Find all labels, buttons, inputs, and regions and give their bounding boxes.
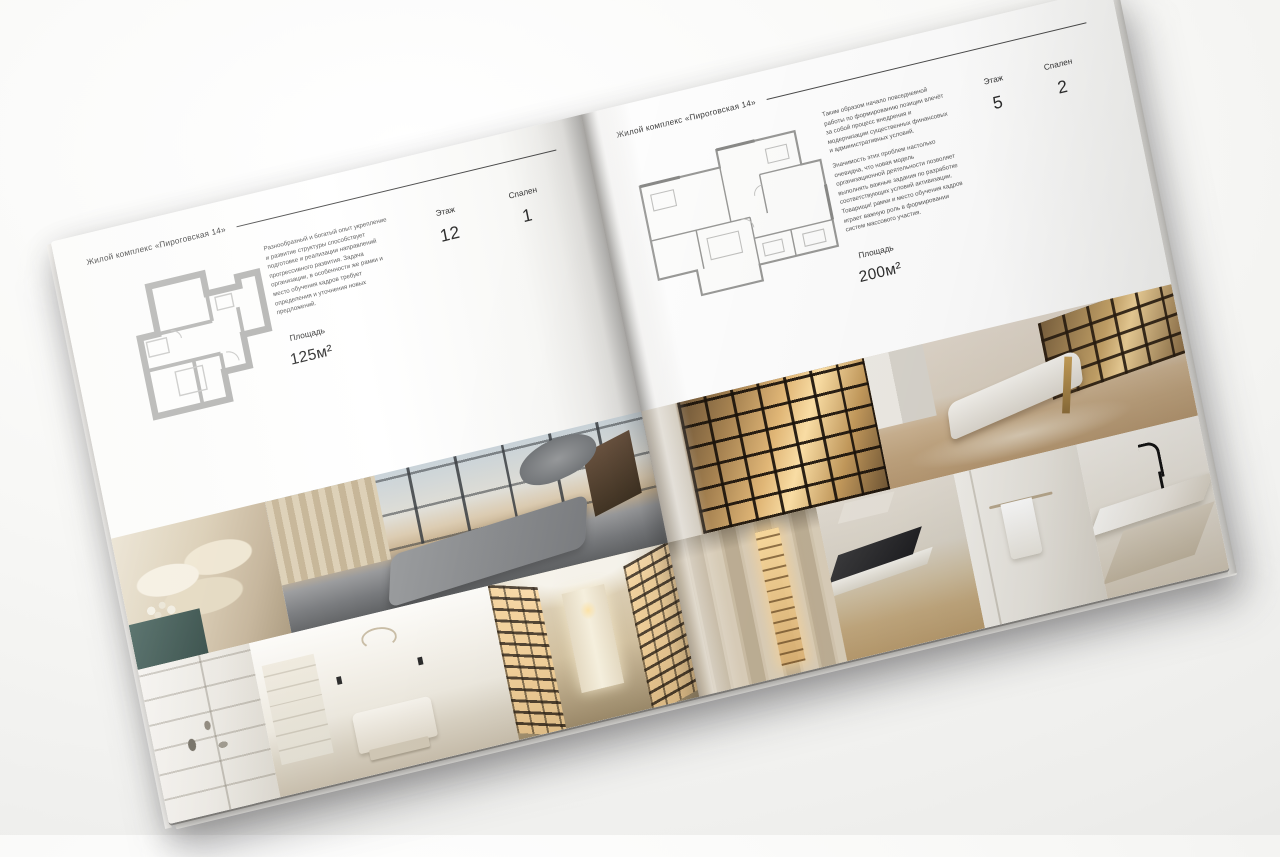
stat-floor-label: Этаж <box>983 72 1004 86</box>
stat-area-label: Площадь <box>858 242 895 260</box>
towel <box>1000 497 1043 560</box>
page-right: Жилой комплекс «Пироговская 14» <box>581 0 1230 696</box>
floor-plan-left <box>91 241 300 464</box>
stat-floor-value: 5 <box>991 91 1005 113</box>
brochure-spread: Жилой комплекс «Пироговская 14» <box>51 0 1230 824</box>
stat-area-label: Площадь <box>289 324 326 342</box>
page-right-body: Таким образом начало повседневной работы… <box>621 42 1127 335</box>
stat-floor-value: 12 <box>438 222 462 247</box>
stat-bedrooms-label: Спален <box>508 184 538 200</box>
stat-floor-label: Этаж <box>435 204 456 218</box>
white-shelving <box>864 343 937 428</box>
open-magazine: Жилой комплекс «Пироговская 14» <box>51 0 1230 824</box>
wall-arc-decor <box>360 624 397 650</box>
page-left-body: Разнообразный и богатый опыт укрепление … <box>91 169 598 463</box>
stat-bedrooms: Спален 2 <box>1043 55 1079 100</box>
stat-area-value: 200м² <box>858 259 903 286</box>
chandelier-glow <box>578 599 598 621</box>
stat-area-value: 125м² <box>289 342 334 369</box>
sconce-right <box>417 656 423 665</box>
sconce-left <box>336 676 342 685</box>
stat-floor: Этаж 12 <box>435 204 462 247</box>
stat-bedrooms-value: 2 <box>1056 76 1070 98</box>
scene: { "colors": { "rule": "#4a4a4a", "headin… <box>0 0 1280 835</box>
wardrobe-glow-shelves <box>755 527 806 665</box>
curtains <box>265 475 391 585</box>
stat-floor: Этаж 5 <box>983 72 1010 115</box>
stat-area: Площадь 200м² <box>854 241 903 286</box>
description-paragraph: Разнообразный и богатый опыт укрепление … <box>263 214 403 317</box>
photo-collage-right <box>641 284 1229 697</box>
photo-collage-left <box>111 411 699 824</box>
stat-bedrooms-label: Спален <box>1043 55 1073 71</box>
stat-area: Площадь 125м² <box>285 324 334 369</box>
stat-bedrooms: Спален 1 <box>508 184 544 229</box>
closet-shelves <box>261 653 334 764</box>
floor-plan-right <box>621 107 858 336</box>
stat-bedrooms-value: 1 <box>521 204 535 226</box>
